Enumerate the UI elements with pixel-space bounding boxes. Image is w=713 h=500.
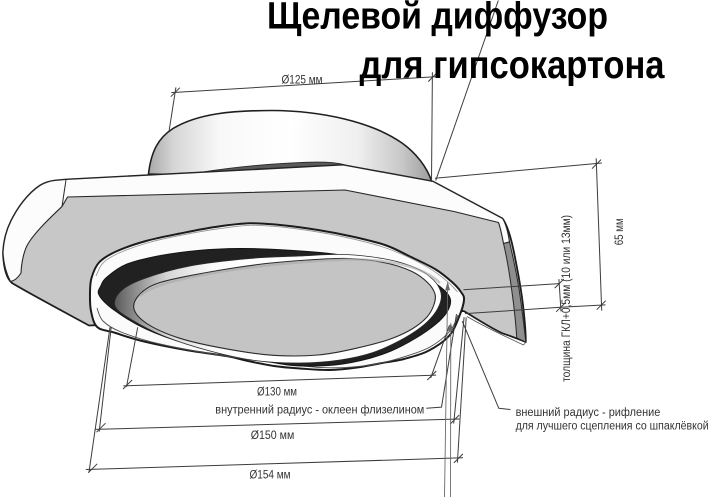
svg-text:65 мм: 65 мм [614,218,626,245]
svg-text:внутренний радиус - оклеен фли: внутренний радиус - оклеен флизелином [215,404,424,416]
svg-text:толщина ГКЛ+0,5мм (10 или 13мм: толщина ГКЛ+0,5мм (10 или 13мм) [561,215,573,382]
svg-text:внешний радиус - рифление: внешний радиус - рифление [516,407,661,419]
svg-text:Ø130 мм: Ø130 мм [257,386,297,398]
svg-text:для лучшего сцепления со шпакл: для лучшего сцепления со шпаклёвкой [516,420,709,432]
svg-text:Щелевой диффузор: Щелевой диффузор [267,0,608,38]
svg-text:для гипсокартона: для гипсокартона [360,44,665,87]
svg-text:Ø125 мм: Ø125 мм [282,75,323,87]
svg-text:Ø150 мм: Ø150 мм [251,430,295,442]
svg-text:Ø154 мм: Ø154 мм [250,470,291,482]
